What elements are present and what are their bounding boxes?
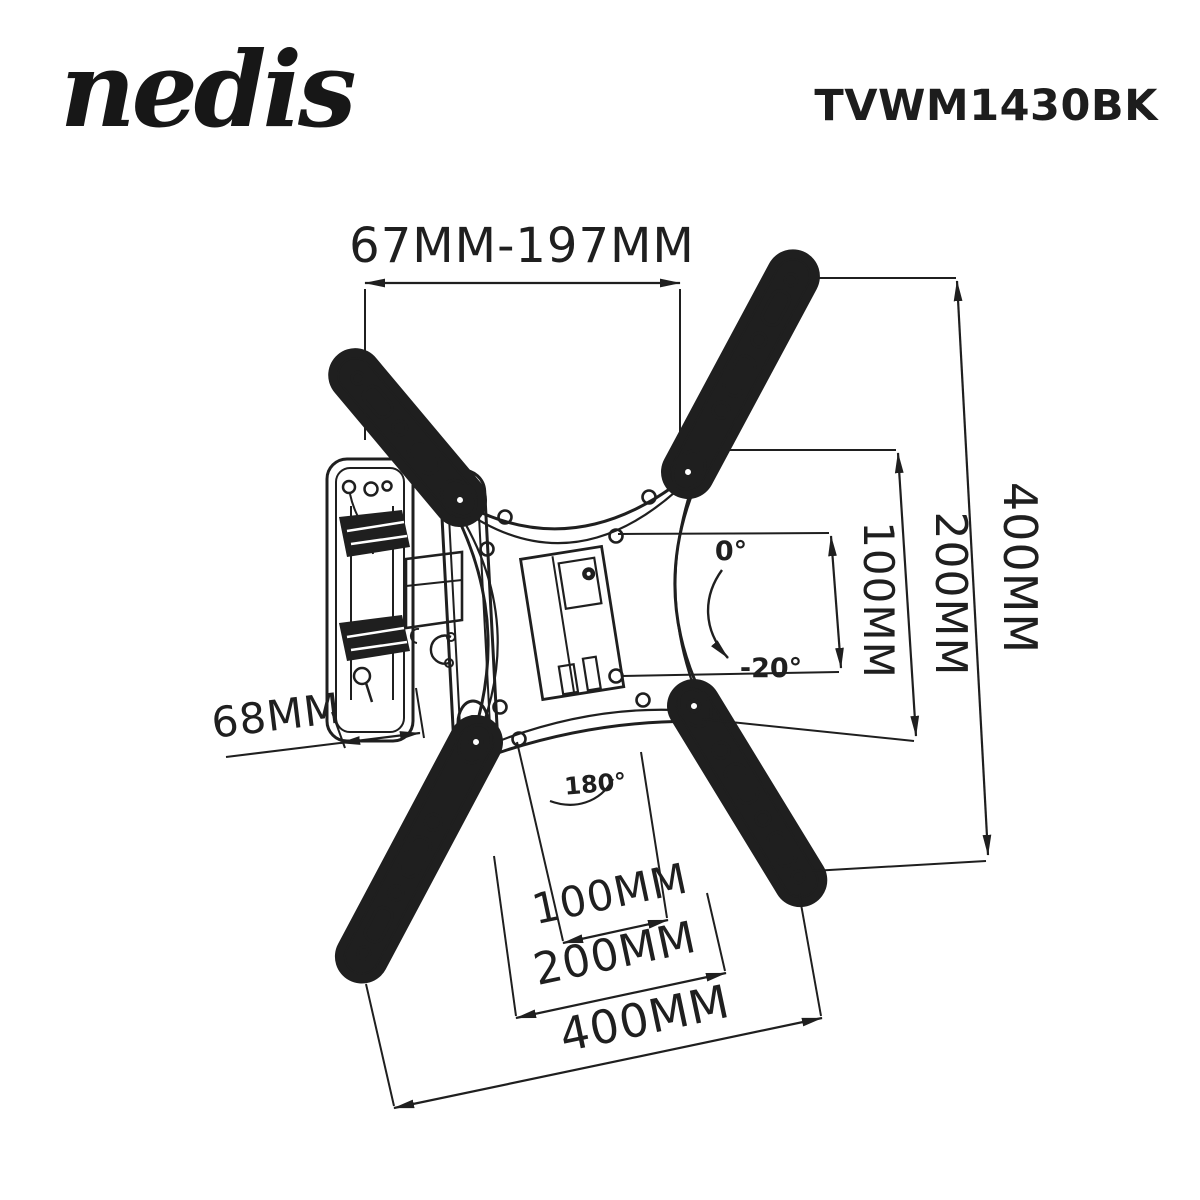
vesa-arm-top-right [651, 240, 829, 509]
dim-top-label: 67MM-197MM [349, 218, 695, 274]
swivel-label: 180° [563, 767, 627, 800]
extension-line [416, 688, 424, 738]
wall-plate-hole [343, 481, 355, 493]
tilt-arrow-icon [708, 570, 728, 658]
extension-line [366, 984, 394, 1106]
brand-logo: nedis [60, 28, 355, 151]
model-number: TVWM1430BK [814, 81, 1159, 131]
extension-line [707, 893, 725, 971]
page: nedis TVWM1430BK [0, 0, 1200, 1200]
extension-line [812, 861, 986, 871]
dimension-line [831, 536, 841, 668]
dimension-depth: 68MM [209, 683, 424, 757]
vesa-arm-top-left [317, 337, 498, 538]
dim-right-400-label: 400MM [993, 482, 1047, 654]
extension-line [799, 893, 821, 1016]
dim-depth-label: 68MM [209, 683, 344, 747]
dimension-right-200: 200MM [692, 450, 976, 741]
lock-lever [354, 668, 370, 684]
wall-plate-hole [365, 483, 378, 496]
extension-line [618, 533, 829, 534]
dim-bottom-400-label: 400MM [555, 974, 735, 1063]
dimension-line-tail [226, 743, 340, 757]
swivel-annotation: 180° [550, 767, 627, 804]
clamp-top [339, 510, 410, 557]
wall-plate-hole [383, 482, 392, 491]
wall-plate [327, 459, 413, 741]
tilt-start-label: 0° [715, 536, 747, 567]
tilt-annotation: 0° -20° [708, 536, 802, 684]
dim-right-200-label: 200MM [925, 512, 976, 677]
extension-line [622, 672, 839, 676]
clamp-bottom [339, 615, 410, 661]
dim-right-100-label: 100MM [854, 521, 903, 679]
diagram-canvas: nedis TVWM1430BK [0, 0, 1200, 1200]
extension-line [494, 856, 516, 1016]
vesa-arm-bottom-left [325, 705, 512, 993]
tilt-end-label: -20° [740, 653, 802, 684]
